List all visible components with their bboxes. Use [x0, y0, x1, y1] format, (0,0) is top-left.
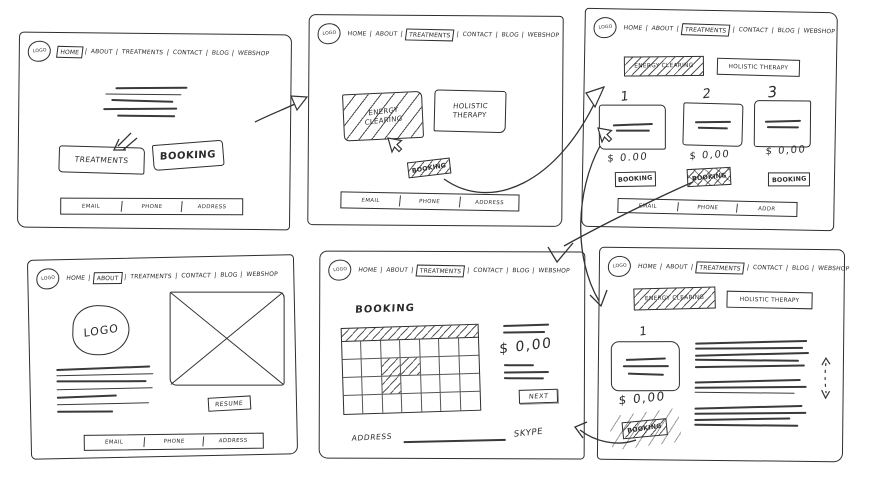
placeholder-line: [694, 405, 802, 409]
panel-treatment-list-wireframe: LOGO HOME | ABOUT | TREATMENTS | CONTACT…: [581, 8, 838, 231]
item-price: $ 0,00: [765, 144, 807, 157]
placeholder-line: [695, 120, 731, 122]
navbar: LOGO HOME | ABOUT | TREATMENTS | CONTACT…: [320, 252, 584, 282]
placeholder-line: [695, 359, 799, 362]
nav-item-treatments[interactable]: TREATMENTS: [405, 28, 455, 41]
resume-button-label: RESUME: [215, 399, 243, 408]
image-x-cross-icon: [171, 293, 284, 385]
logo-circle[interactable]: LOGO: [36, 268, 59, 289]
footer-contact-bar: EMAIL PHONE ADDRESS: [340, 191, 519, 211]
next-button-label: NEXT: [528, 392, 548, 401]
holistic-therapy-card[interactable]: HOLISTIC THERAPY: [434, 89, 507, 133]
calendar-cell[interactable]: [421, 393, 441, 412]
nav-separator: |: [645, 24, 649, 32]
nav-item-treatments[interactable]: TREATMENTS: [129, 272, 173, 281]
nav-separator: |: [84, 47, 88, 55]
calendar-cell[interactable]: [459, 356, 479, 375]
placeholder-line: [625, 357, 665, 360]
calendar-cell[interactable]: [383, 394, 403, 413]
treatment-photo-card: [611, 341, 680, 391]
navbar: LOGO HOME | ABOUT | TREATMENTS | CONTACT…: [600, 248, 844, 280]
nav-item-about[interactable]: ABOUT: [93, 272, 123, 284]
placeholder-line: [622, 365, 668, 367]
placeholder-line: [57, 387, 153, 391]
calendar-cell[interactable]: [459, 338, 479, 357]
summary-text-lines: [503, 324, 553, 332]
nav-item-blog[interactable]: BLOG: [776, 26, 796, 36]
placeholder-line: [503, 324, 549, 327]
address-label: ADDRESS: [351, 432, 392, 443]
calendar-cell[interactable]: [381, 340, 401, 359]
nav-separator: |: [380, 266, 384, 274]
placeholder-line: [111, 99, 173, 102]
logo-circle[interactable]: LOGO: [28, 41, 51, 62]
footer-phone: PHONE: [144, 434, 204, 449]
big-logo-label: LOGO: [83, 321, 119, 339]
nav-item-blog[interactable]: BLOG: [500, 30, 520, 39]
booking-price: $ 0,00: [499, 335, 552, 357]
footer-contact-bar: EMAIL PHONE ADDR: [617, 198, 797, 217]
item-price: $ 0,00: [689, 149, 731, 162]
nav-item-webshop[interactable]: WEBSHOP: [802, 26, 837, 36]
booking-button[interactable]: BOOKING: [407, 158, 452, 179]
nav-separator: |: [797, 26, 801, 34]
calendar-cell-booked[interactable]: [381, 358, 401, 377]
footer-email: EMAIL: [341, 192, 401, 208]
calendar-grid: [342, 338, 480, 414]
placeholder-line: [56, 365, 150, 370]
footer-email: EMAIL: [61, 199, 122, 214]
nav-item-webshop[interactable]: WEBSHOP: [245, 270, 279, 279]
energy-clearing-tab[interactable]: ENERGY CLEARING: [633, 287, 716, 311]
item-number: 3: [767, 82, 778, 101]
calendar-cell[interactable]: [363, 395, 383, 414]
resume-button[interactable]: RESUME: [208, 395, 252, 411]
nav-separator: |: [660, 262, 664, 270]
placeholder-line: [695, 378, 801, 382]
nav-separator: |: [495, 30, 499, 38]
holistic-therapy-tab[interactable]: HOLISTIC THERAPY: [726, 291, 812, 310]
placeholder-line: [57, 411, 113, 413]
nav-item-treatments[interactable]: TREATMENTS: [120, 47, 165, 57]
nav-item-contact[interactable]: CONTACT: [171, 48, 204, 58]
item-number: 2: [702, 86, 711, 102]
energy-clearing-tab[interactable]: ENERGY CLEARING: [624, 56, 704, 77]
logo-circle[interactable]: LOGO: [318, 23, 341, 44]
logo-label: LOGO: [333, 267, 347, 273]
nav-item-webshop[interactable]: WEBSHOP: [537, 266, 572, 276]
nav-menu: HOME | ABOUT | TREATMENTS | CONTACT | BL…: [357, 264, 571, 277]
treatments-button[interactable]: TREATMENTS: [58, 145, 145, 174]
logo-label: LOGO: [322, 31, 336, 37]
treatment-card[interactable]: [599, 105, 666, 150]
nav-separator: |: [115, 47, 119, 55]
nav-separator: |: [124, 273, 127, 281]
calendar-cell-booked[interactable]: [401, 358, 421, 377]
nav-menu: HOME | ABOUT | TREATMENTS | CONTACT | BL…: [57, 45, 271, 59]
treatment-card[interactable]: [754, 100, 811, 147]
placeholder-line: [694, 417, 790, 420]
nav-separator: |: [88, 273, 91, 281]
calendar-cell[interactable]: [439, 338, 459, 357]
logo-label: LOGO: [598, 25, 612, 31]
calendar-cell[interactable]: [362, 359, 382, 378]
footer-address: ADDRESS: [459, 195, 519, 211]
navbar: LOGO HOME | ABOUT | TREATMENTS | CONTACT…: [20, 33, 291, 65]
placeholder-line: [695, 352, 809, 356]
nav-separator: |: [732, 25, 736, 33]
wireframe-sketch-canvas: LOGO HOME | ABOUT | TREATMENTS | CONTACT…: [0, 0, 874, 480]
nav-item-about[interactable]: ABOUT: [374, 29, 399, 38]
nav-item-home[interactable]: HOME: [346, 29, 368, 38]
calendar-cell[interactable]: [460, 392, 480, 411]
nav-item-contact[interactable]: CONTACT: [472, 266, 505, 276]
nav-item-home[interactable]: HOME: [357, 266, 379, 275]
panel-about-wireframe: LOGO HOME | ABOUT | TREATMENTS | CONTACT…: [27, 254, 298, 460]
placeholder-line: [57, 402, 149, 405]
treatment-card[interactable]: [682, 102, 743, 147]
nav-separator: |: [240, 270, 243, 278]
item-price: $ 0,00: [618, 389, 666, 408]
calendar-cell[interactable]: [420, 357, 440, 376]
footer-email: EMAIL: [84, 435, 144, 450]
placeholder-line: [766, 126, 798, 128]
holistic-therapy-tab[interactable]: HOLISTIC THERAPY: [717, 58, 800, 77]
big-logo-circle: LOGO: [72, 304, 131, 356]
nav-item-home[interactable]: HOME: [56, 45, 83, 58]
image-placeholder: [170, 292, 285, 386]
calendar-cell[interactable]: [460, 374, 480, 393]
booking-button[interactable]: BOOKING: [152, 140, 225, 171]
calendar-cell[interactable]: [420, 339, 440, 358]
logo-circle[interactable]: LOGO: [328, 260, 351, 281]
logo-label: LOGO: [41, 276, 55, 282]
nav-item-webshop[interactable]: WEBSHOP: [526, 30, 561, 40]
nav-menu: HOME | ABOUT | TREATMENTS | CONTACT | BL…: [637, 261, 851, 275]
nav-item-contact[interactable]: CONTACT: [737, 25, 770, 35]
calendar-cell[interactable]: [441, 392, 461, 411]
placeholder-line: [504, 364, 534, 366]
placeholder-line: [615, 130, 649, 132]
nav-separator: |: [812, 264, 816, 272]
logo-circle[interactable]: LOGO: [593, 17, 616, 38]
footer-address: ADDRESS: [204, 434, 264, 449]
nav-item-treatments[interactable]: TREATMENTS: [695, 261, 745, 274]
energy-clearing-label: ENERGY CLEARING: [356, 104, 411, 128]
logo-label: LOGO: [32, 48, 46, 54]
scroll-updown-arrow-icon[interactable]: [818, 356, 834, 400]
nav-item-treatments[interactable]: TREATMENTS: [416, 264, 466, 277]
placeholder-line: [694, 412, 806, 414]
nav-separator: |: [175, 272, 178, 280]
placeholder-line: [695, 340, 807, 344]
calendar-cell[interactable]: [402, 394, 422, 413]
energy-clearing-card[interactable]: ENERGY CLEARING: [342, 91, 424, 142]
address-underline: [404, 439, 506, 443]
nav-separator: |: [369, 29, 373, 37]
calendar-widget[interactable]: [341, 324, 482, 415]
nav-separator: |: [521, 30, 525, 38]
nav-item-blog[interactable]: BLOG: [510, 266, 530, 275]
nav-separator: |: [532, 266, 536, 274]
navbar: LOGO HOME | ABOUT | TREATMENTS | CONTACT…: [310, 15, 563, 46]
nav-separator: |: [676, 24, 680, 32]
nav-item-webshop[interactable]: WEBSHOP: [817, 264, 852, 274]
calendar-cell[interactable]: [401, 376, 421, 395]
footer-email: EMAIL: [618, 199, 678, 213]
energy-clearing-label: ENERGY CLEARING: [645, 295, 704, 302]
nav-item-treatments[interactable]: TREATMENTS: [681, 23, 731, 36]
placeholder-line: [694, 424, 798, 427]
nav-item-home[interactable]: HOME: [65, 274, 87, 283]
footer-phone: PHONE: [677, 200, 737, 214]
nav-item-about[interactable]: ABOUT: [664, 262, 689, 272]
calendar-cell[interactable]: [344, 395, 364, 414]
calendar-cell-booked[interactable]: [382, 376, 402, 395]
nav-separator: |: [400, 30, 404, 38]
treatments-button-label: TREATMENTS: [74, 155, 129, 165]
item-number: 1: [620, 89, 629, 105]
placeholder-line: [612, 122, 652, 125]
nav-separator: |: [467, 266, 471, 274]
nav-item-blog[interactable]: BLOG: [219, 271, 239, 280]
footer-address: ADDR: [737, 202, 797, 216]
holistic-therapy-label: HOLISTIC THERAPY: [444, 102, 496, 120]
nav-item-blog[interactable]: BLOG: [790, 264, 810, 273]
calendar-cell[interactable]: [343, 377, 363, 396]
nav-item-contact[interactable]: CONTACT: [751, 263, 784, 273]
booking-button-label: BOOKING: [691, 172, 726, 183]
nav-separator: |: [411, 266, 415, 274]
placeholder-line: [103, 107, 177, 109]
nav-item-contact[interactable]: CONTACT: [180, 271, 212, 280]
nav-separator: |: [506, 266, 510, 274]
placeholder-line: [56, 373, 153, 377]
energy-clearing-label: ENERGY CLEARING: [634, 63, 693, 70]
nav-item-about[interactable]: ABOUT: [89, 47, 114, 57]
placeholder-line: [56, 380, 146, 382]
footer-phone: PHONE: [121, 199, 182, 214]
nav-item-about[interactable]: ABOUT: [650, 24, 675, 34]
booking-button[interactable]: BOOKING: [615, 171, 656, 187]
footer-contact-bar: EMAIL PHONE ADDRESS: [60, 198, 243, 216]
description-text-lines: [694, 341, 813, 427]
panel-treatment-detail-wireframe: LOGO HOME | ABOUT | TREATMENTS | CONTACT…: [597, 247, 845, 463]
placeholder-line: [698, 127, 728, 129]
about-text-lines: [56, 366, 157, 413]
nav-item-webshop[interactable]: WEBSHOP: [237, 49, 272, 59]
placeholder-line: [504, 377, 544, 379]
calendar-cell[interactable]: [400, 340, 420, 359]
holistic-therapy-label: HOLISTIC THERAPY: [728, 64, 788, 72]
placeholder-line: [764, 119, 800, 121]
footer-contact-bar: EMAIL PHONE ADDRESS: [84, 433, 264, 451]
nav-separator: |: [771, 26, 775, 34]
nav-menu: HOME | ABOUT | TREATMENTS | CONTACT | BL…: [622, 22, 836, 38]
calendar-cell[interactable]: [440, 356, 460, 375]
summary-text-lines: [504, 364, 554, 379]
placeholder-line: [503, 330, 545, 332]
placeholder-line: [117, 115, 175, 117]
booking-button[interactable]: BOOKING: [768, 172, 810, 186]
panel-treatments-wireframe: LOGO HOME | ABOUT | TREATMENTS | CONTACT…: [307, 14, 563, 227]
placeholder-line: [695, 347, 803, 349]
booking-button-label: BOOKING: [160, 149, 216, 162]
placeholder-line: [57, 394, 117, 398]
nav-separator: |: [746, 263, 750, 271]
nav-separator: |: [785, 264, 789, 272]
nav-item-contact[interactable]: CONTACT: [461, 30, 494, 40]
nav-separator: |: [205, 48, 209, 56]
item-number: 1: [639, 324, 647, 339]
nav-separator: |: [456, 30, 460, 38]
nav-item-blog[interactable]: BLOG: [210, 48, 230, 57]
booking-button-label: BOOKING: [772, 175, 807, 184]
nav-separator: |: [166, 48, 170, 56]
nav-item-home[interactable]: HOME: [622, 23, 644, 33]
footer-phone: PHONE: [400, 193, 460, 209]
calendar-cell[interactable]: [361, 341, 381, 360]
placeholder-line: [695, 385, 807, 387]
calendar-cell[interactable]: [342, 341, 362, 360]
calendar-cell[interactable]: [421, 375, 441, 394]
placeholder-line: [695, 391, 795, 394]
logo-label: LOGO: [612, 263, 626, 269]
navbar: LOGO HOME | ABOUT | TREATMENTS | CONTACT…: [585, 9, 836, 42]
calendar-cell[interactable]: [343, 359, 363, 378]
nav-item-about[interactable]: ABOUT: [385, 266, 410, 275]
navbar: LOGO HOME | ABOUT | TREATMENTS | CONTACT…: [28, 255, 294, 290]
nav-separator: |: [214, 271, 217, 279]
footer-address: ADDRESS: [182, 199, 243, 214]
booking-strikethrough-marks: [608, 408, 682, 451]
panel-booking-wireframe: LOGO HOME | ABOUT | TREATMENTS | CONTACT…: [319, 251, 586, 460]
placeholder-line: [695, 364, 805, 367]
booking-title: BOOKING: [355, 303, 415, 316]
calendar-cell[interactable]: [440, 374, 460, 393]
calendar-cell[interactable]: [363, 377, 383, 396]
holistic-therapy-label: HOLISTIC THERAPY: [740, 296, 800, 303]
booking-button-crossed[interactable]: BOOKING: [687, 167, 732, 187]
skype-label[interactable]: SKYPE: [513, 427, 543, 440]
nav-separator: |: [691, 263, 695, 271]
item-price: $ 0.00: [607, 151, 649, 164]
logo-circle[interactable]: LOGO: [608, 256, 631, 277]
nav-separator: |: [232, 49, 236, 57]
booking-button-label: BOOKING: [412, 162, 447, 175]
nav-menu: HOME | ABOUT | TREATMENTS | CONTACT | BL…: [65, 268, 279, 284]
nav-item-home[interactable]: HOME: [636, 262, 658, 271]
intro-text-lines: [97, 81, 227, 117]
next-button[interactable]: NEXT: [519, 389, 558, 404]
panel-home-wireframe: LOGO HOME | ABOUT | TREATMENTS | CONTACT…: [17, 32, 292, 231]
placeholder-line: [115, 87, 187, 89]
nav-menu: HOME | ABOUT | TREATMENTS | CONTACT | BL…: [347, 28, 561, 41]
placeholder-line: [504, 370, 549, 372]
booking-button-label: BOOKING: [618, 175, 653, 184]
placeholder-line: [627, 372, 663, 375]
placeholder-line: [105, 93, 181, 95]
